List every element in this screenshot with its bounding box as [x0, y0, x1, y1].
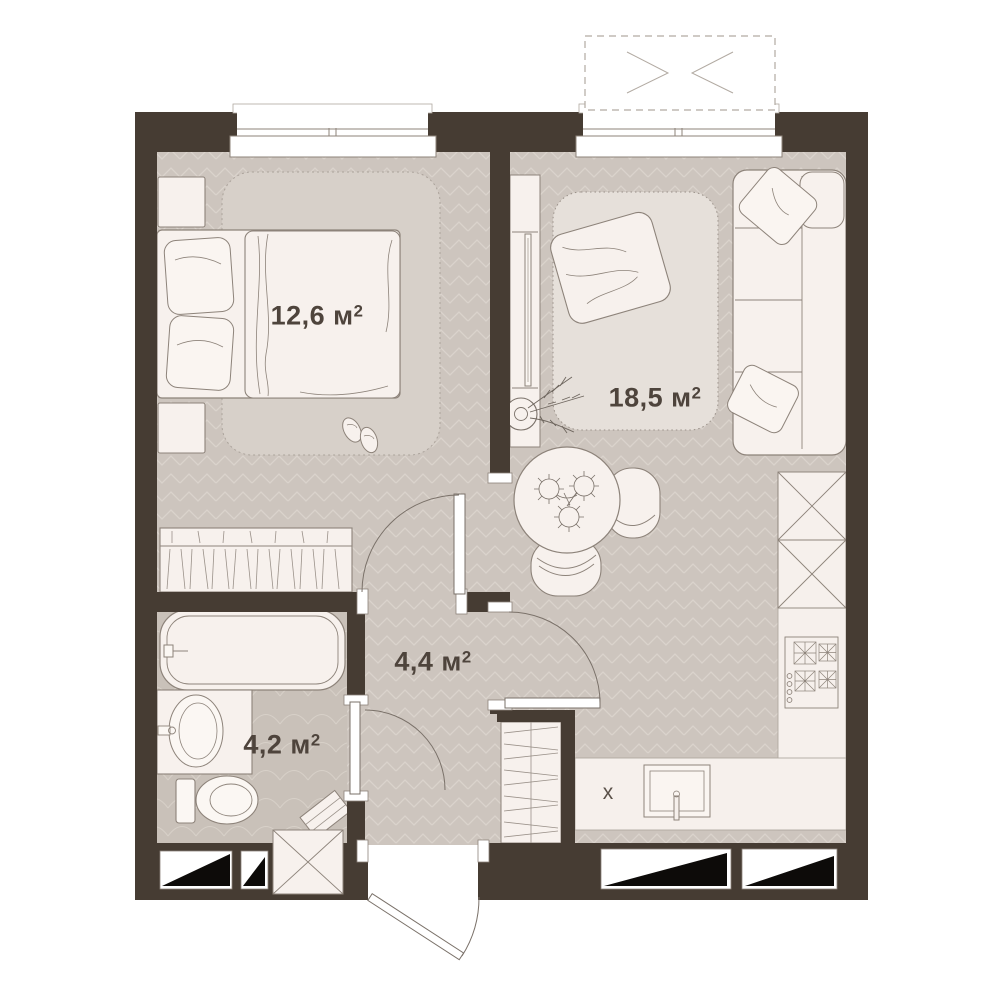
- hallway-area-label: 4,4 м2: [394, 647, 471, 678]
- bathtub: [160, 610, 345, 690]
- wardrobe: [160, 528, 352, 592]
- sink-unit-mark: х: [603, 781, 614, 805]
- washbasin: [157, 690, 252, 774]
- kitchen-sink: [644, 765, 710, 820]
- wall-end-cap: [488, 473, 512, 483]
- living-window: [576, 104, 782, 157]
- washing-machine: [273, 830, 343, 894]
- bathroom-area-label: 4,2 м2: [243, 730, 320, 761]
- balcony: [585, 36, 775, 110]
- corner-sofa: [724, 164, 846, 455]
- toilet: [176, 776, 258, 824]
- closet: [501, 722, 561, 843]
- floor-plan: 12,6 м2 18,5 м2 4,4 м2 4,2 м2 х: [0, 0, 1000, 1000]
- round-dining-table: [514, 447, 620, 553]
- floor-plan-drawing: [0, 0, 1000, 1000]
- bedroom-window: [230, 104, 436, 157]
- living-kitchen-area-label: 18,5 м2: [609, 383, 702, 414]
- entry-door: [357, 840, 489, 960]
- bedroom-area-label: 12,6 м2: [271, 301, 364, 332]
